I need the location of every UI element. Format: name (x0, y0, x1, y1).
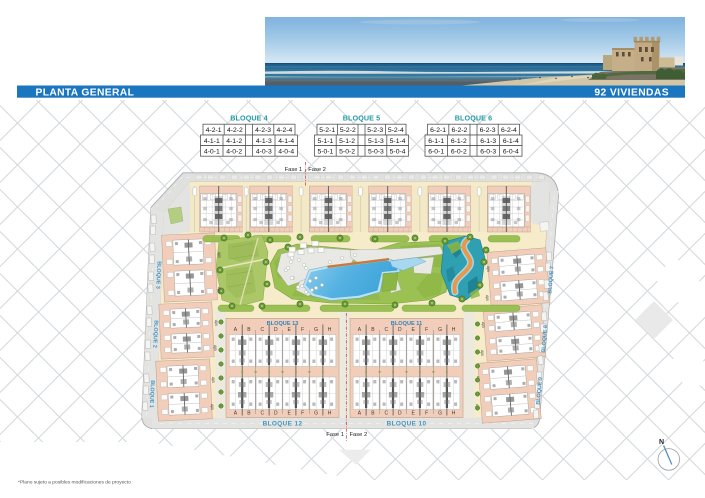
svg-text:5-0-4: 5-0-4 (390, 148, 406, 155)
svg-text:D: D (398, 410, 402, 416)
svg-text:6-2-1: 6-2-1 (430, 127, 446, 134)
svg-text:G: G (438, 410, 442, 416)
svg-text:4-1-2: 4-1-2 (226, 138, 242, 145)
svg-text:A|B: A|B (485, 295, 489, 301)
svg-text:4-2-4: 4-2-4 (276, 127, 292, 134)
svg-text:Fase 1: Fase 1 (285, 167, 303, 173)
svg-text:PLANTA GENERAL: PLANTA GENERAL (36, 87, 135, 98)
svg-text:G: G (438, 327, 442, 333)
svg-text:A|B: A|B (213, 345, 217, 351)
svg-text:C: C (260, 327, 264, 333)
svg-text:4-0-3: 4-0-3 (256, 148, 272, 155)
svg-text:5-1-1: 5-1-1 (317, 138, 333, 145)
svg-text:N: N (659, 439, 664, 446)
svg-text:6-1-1: 6-1-1 (428, 138, 444, 145)
svg-text:6-0-1: 6-0-1 (428, 148, 444, 155)
svg-text:A|B: A|B (211, 377, 215, 383)
svg-text:4-1-1: 4-1-1 (204, 138, 220, 145)
svg-text:H: H (328, 410, 332, 416)
svg-text:BLOQUE 3: BLOQUE 3 (154, 261, 161, 289)
svg-text:BLOQUE 12: BLOQUE 12 (263, 421, 303, 428)
svg-text:Fase 2: Fase 2 (308, 167, 326, 173)
svg-text:C: C (384, 327, 388, 333)
svg-text:F: F (301, 327, 304, 333)
svg-text:5-1-3: 5-1-3 (368, 138, 384, 145)
svg-text:D: D (274, 327, 278, 333)
svg-text:A|B: A|B (480, 350, 484, 356)
svg-text:4-2-1: 4-2-1 (206, 127, 222, 134)
svg-text:H: H (328, 327, 332, 333)
svg-text:5-0-3: 5-0-3 (368, 148, 384, 155)
svg-text:Fase 1: Fase 1 (326, 432, 344, 438)
svg-text:D: D (398, 327, 402, 333)
svg-text:6-2-3: 6-2-3 (480, 127, 496, 134)
svg-text:6-2-2: 6-2-2 (451, 127, 467, 134)
svg-text:4-1-4: 4-1-4 (278, 138, 294, 145)
svg-text:BLOQUE 2: BLOQUE 2 (151, 320, 158, 348)
svg-text:92 VIVIENDAS: 92 VIVIENDAS (594, 87, 669, 98)
svg-text:5-1-4: 5-1-4 (390, 138, 406, 145)
svg-text:BLOQUE 4: BLOQUE 4 (230, 114, 268, 123)
svg-text:BLOQUE 13: BLOQUE 13 (267, 321, 299, 327)
svg-text:A|B: A|B (217, 252, 221, 258)
svg-text:5-0-2: 5-0-2 (339, 148, 355, 155)
svg-text:5-2-1: 5-2-1 (319, 127, 335, 134)
svg-text:5-0-1: 5-0-1 (317, 148, 333, 155)
svg-text:A|B: A|B (217, 287, 221, 293)
svg-text:BLOQUE 10: BLOQUE 10 (387, 421, 427, 428)
svg-text:6-0-4: 6-0-4 (503, 148, 519, 155)
svg-text:H: H (452, 327, 456, 333)
svg-text:G: G (314, 410, 318, 416)
svg-text:*Plano sujeto a posibles modif: *Plano sujeto a posibles modificaciones … (18, 480, 131, 486)
svg-text:4-0-1: 4-0-1 (204, 148, 220, 155)
svg-text:6-1-4: 6-1-4 (503, 138, 519, 145)
svg-text:6-1-2: 6-1-2 (451, 138, 467, 145)
svg-text:BLOQUE 11: BLOQUE 11 (391, 321, 422, 327)
svg-text:F: F (301, 410, 304, 416)
svg-text:BLOQUE 6: BLOQUE 6 (455, 114, 493, 123)
svg-text:5-2-3: 5-2-3 (367, 127, 383, 134)
svg-text:5-1-2: 5-1-2 (339, 138, 355, 145)
svg-text:6-0-2: 6-0-2 (451, 148, 467, 155)
svg-text:G: G (314, 327, 318, 333)
svg-text:Fase 2: Fase 2 (350, 432, 368, 438)
svg-text:6-2-4: 6-2-4 (501, 127, 517, 134)
svg-text:C: C (384, 410, 388, 416)
svg-text:F: F (425, 327, 428, 333)
svg-text:C: C (260, 410, 264, 416)
svg-text:4-2-2: 4-2-2 (227, 127, 243, 134)
svg-text:BLOQUE 5: BLOQUE 5 (343, 114, 381, 123)
svg-text:A|B: A|B (486, 266, 490, 272)
svg-text:D: D (274, 410, 278, 416)
svg-text:4-0-2: 4-0-2 (226, 148, 242, 155)
svg-text:5-2-4: 5-2-4 (388, 127, 404, 134)
svg-text:BLOQUE 1: BLOQUE 1 (148, 380, 155, 408)
svg-text:6-1-3: 6-1-3 (480, 138, 496, 145)
svg-text:5-2-2: 5-2-2 (340, 127, 356, 134)
svg-text:4-2-3: 4-2-3 (255, 127, 271, 134)
svg-text:A|B: A|B (210, 404, 214, 410)
svg-text:A|B: A|B (481, 322, 485, 328)
svg-text:A|B: A|B (214, 320, 218, 326)
svg-text:F: F (425, 410, 428, 416)
svg-text:6-0-3: 6-0-3 (480, 148, 496, 155)
svg-text:4-0-4: 4-0-4 (278, 148, 294, 155)
svg-text:4-1-3: 4-1-3 (256, 138, 272, 145)
svg-text:H: H (452, 410, 456, 416)
